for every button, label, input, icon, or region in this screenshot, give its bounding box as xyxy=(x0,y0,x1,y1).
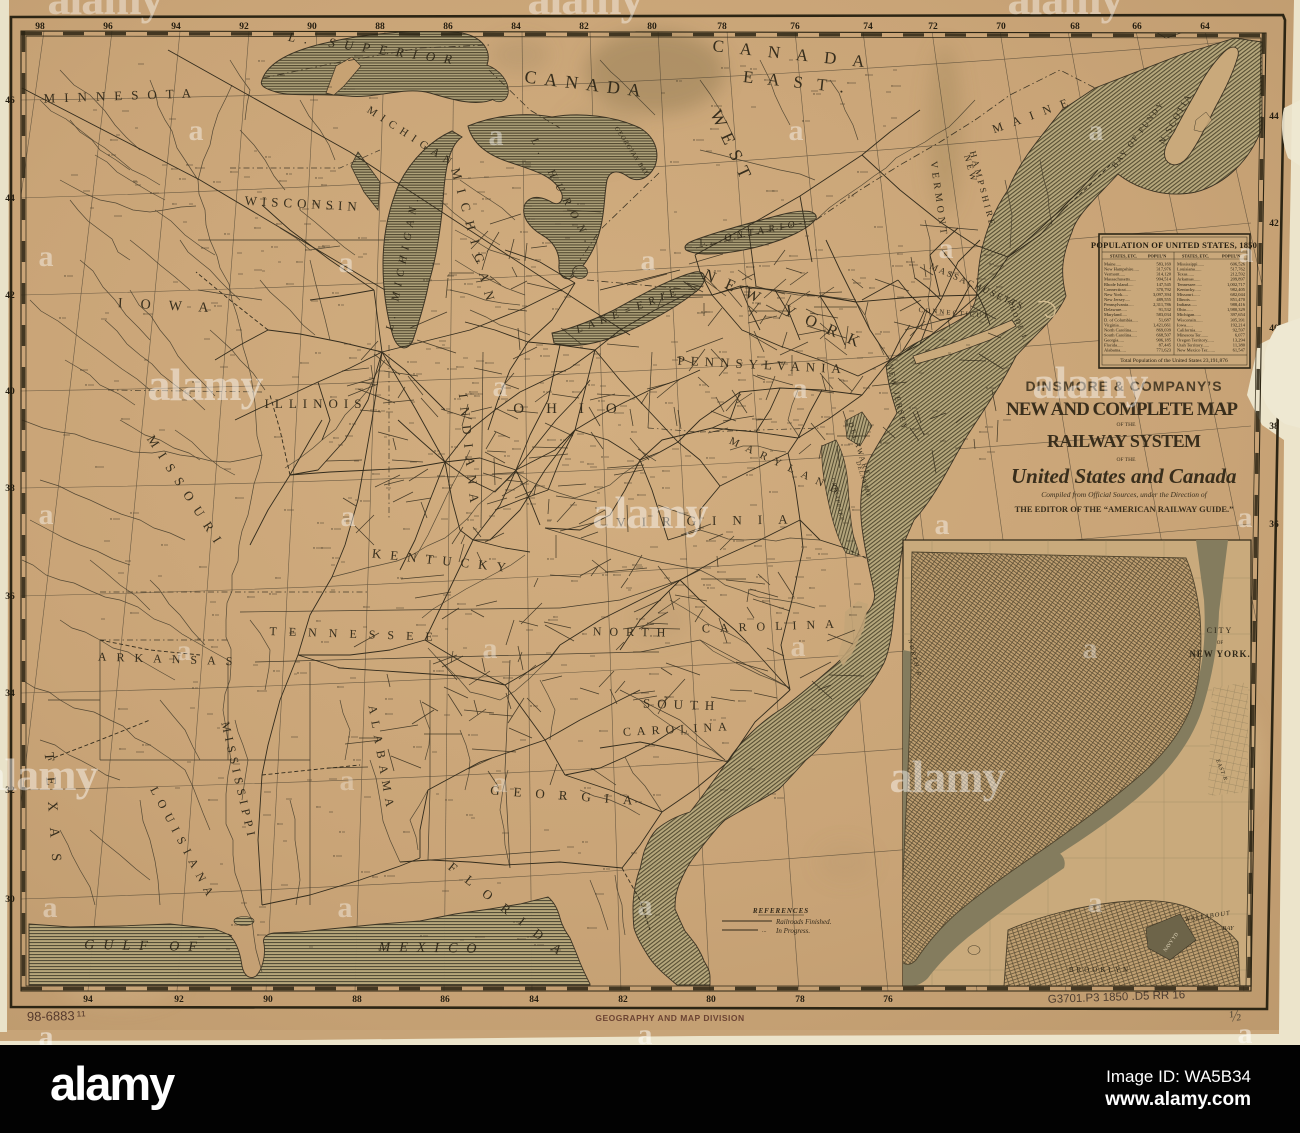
svg-text:72: 72 xyxy=(928,22,938,32)
svg-text:a: a xyxy=(935,508,950,541)
svg-text:a: a xyxy=(793,372,808,405)
svg-text:78: 78 xyxy=(717,22,727,32)
svg-text:44: 44 xyxy=(1269,112,1279,122)
svg-text:a: a xyxy=(177,634,192,667)
svg-text:30: 30 xyxy=(5,895,15,905)
svg-text:98-6883 ¹¹: 98-6883 ¹¹ xyxy=(27,1008,86,1024)
svg-text:66: 66 xyxy=(1132,22,1142,32)
svg-text:a: a xyxy=(189,114,204,147)
svg-text:GEOGRAPHY AND MAP DIVISION: GEOGRAPHY AND MAP DIVISION xyxy=(595,1013,744,1023)
svg-text:78: 78 xyxy=(795,995,805,1005)
svg-text:86: 86 xyxy=(440,995,450,1005)
svg-text:80: 80 xyxy=(647,22,657,32)
svg-text:a: a xyxy=(1238,501,1253,534)
svg-text:a: a xyxy=(641,244,656,277)
svg-text:42: 42 xyxy=(5,291,15,301)
svg-text:BROOKLYN: BROOKLYN xyxy=(1069,966,1131,974)
svg-text:36: 36 xyxy=(1269,520,1279,530)
svg-text:NORTH: NORTH xyxy=(593,624,674,639)
svg-text:88: 88 xyxy=(375,22,385,32)
svg-text:38: 38 xyxy=(5,484,15,494)
svg-text:United States and Canada: United States and Canada xyxy=(1011,464,1237,488)
svg-text:a: a xyxy=(39,498,54,531)
svg-text:In Progress.: In Progress. xyxy=(775,927,810,935)
svg-text:alamy: alamy xyxy=(1032,357,1148,408)
svg-text:a: a xyxy=(43,891,58,924)
svg-text:alamy: alamy xyxy=(889,751,1005,802)
svg-text:Image ID: WA5B34: Image ID: WA5B34 xyxy=(1106,1067,1251,1086)
svg-text:94: 94 xyxy=(171,22,181,32)
svg-text:POPULATION OF UNITED STATES, 1: POPULATION OF UNITED STATES, 1850 xyxy=(1091,240,1257,250)
svg-text:THE EDITOR OF THE “AMERICAN RA: THE EDITOR OF THE “AMERICAN RAILWAY GUID… xyxy=(1015,504,1234,514)
svg-text:74: 74 xyxy=(863,22,873,32)
svg-text:a: a xyxy=(791,630,806,663)
svg-text:SOUTH: SOUTH xyxy=(643,696,722,714)
svg-text:90: 90 xyxy=(263,995,273,1005)
svg-text:a: a xyxy=(638,889,653,922)
svg-text:92: 92 xyxy=(174,995,184,1005)
svg-text:Compiled from Official Sources: Compiled from Official Sources, under th… xyxy=(1041,490,1207,499)
svg-text:NEW YORK.: NEW YORK. xyxy=(1189,649,1251,659)
svg-text:82: 82 xyxy=(618,995,628,1005)
svg-text:76: 76 xyxy=(790,22,800,32)
svg-text:a: a xyxy=(1089,114,1104,147)
svg-text:alamy: alamy xyxy=(147,359,263,410)
svg-text:36: 36 xyxy=(5,592,15,602)
svg-text:86: 86 xyxy=(443,22,453,32)
svg-text:STATES, ETC.: STATES, ETC. xyxy=(1110,254,1137,259)
svg-text:40: 40 xyxy=(5,387,15,397)
svg-text:OF: OF xyxy=(1217,641,1224,646)
svg-text:ILLINOIS: ILLINOIS xyxy=(265,396,368,411)
svg-text:alamy: alamy xyxy=(1007,0,1123,24)
svg-text:98: 98 xyxy=(35,22,45,32)
svg-text:RAILWAY SYSTEM: RAILWAY SYSTEM xyxy=(1047,431,1203,451)
svg-text:92: 92 xyxy=(239,22,249,32)
svg-text:84: 84 xyxy=(529,995,539,1005)
svg-text:64: 64 xyxy=(1200,22,1210,32)
svg-text:90: 90 xyxy=(307,22,317,32)
svg-text:BAY: BAY xyxy=(1222,925,1235,932)
svg-text:POPUL’N: POPUL’N xyxy=(1148,254,1166,259)
svg-text:OF THE: OF THE xyxy=(1117,457,1137,463)
svg-text:a: a xyxy=(1088,886,1103,919)
svg-text:alamy: alamy xyxy=(592,487,708,538)
svg-text:a: a xyxy=(483,632,498,665)
svg-text:alamy: alamy xyxy=(50,1057,175,1110)
svg-text:44: 44 xyxy=(5,194,15,204)
svg-text:OHIO: OHIO xyxy=(513,401,639,417)
svg-text:alamy: alamy xyxy=(527,0,643,24)
svg-text:www.alamy.com: www.alamy.com xyxy=(1104,1089,1251,1110)
svg-text:a: a xyxy=(939,232,954,265)
svg-text:alamy: alamy xyxy=(0,749,99,800)
svg-text:POPUL’N: POPUL’N xyxy=(1222,254,1240,259)
svg-text:Alabama.....: Alabama..... xyxy=(1104,348,1126,353)
svg-text:70: 70 xyxy=(996,22,1006,32)
svg-text:34: 34 xyxy=(5,689,15,699)
svg-text:84: 84 xyxy=(511,22,521,32)
svg-text:a: a xyxy=(338,891,353,924)
svg-text:a: a xyxy=(1239,236,1254,269)
svg-text:80: 80 xyxy=(706,995,716,1005)
svg-text:a: a xyxy=(341,500,356,533)
svg-text:a: a xyxy=(339,246,354,279)
svg-text:a: a xyxy=(489,119,504,152)
svg-text:a: a xyxy=(1083,632,1098,665)
svg-text:a: a xyxy=(39,240,54,273)
svg-text:42: 42 xyxy=(1269,219,1279,229)
svg-text:MEXICO: MEXICO xyxy=(377,940,485,957)
svg-text:GULF OF: GULF OF xyxy=(84,938,206,955)
svg-text:STATES, ETC.: STATES, ETC. xyxy=(1182,254,1209,259)
svg-text:a: a xyxy=(493,370,508,403)
svg-text:76: 76 xyxy=(883,995,893,1005)
svg-text:a: a xyxy=(493,766,508,799)
svg-text:REFERENCES: REFERENCES xyxy=(752,907,809,915)
svg-text:CITY: CITY xyxy=(1207,626,1234,635)
svg-text:a: a xyxy=(789,114,804,147)
svg-text:Railroads Finished.: Railroads Finished. xyxy=(775,918,832,926)
svg-text:94: 94 xyxy=(83,995,93,1005)
svg-text:88: 88 xyxy=(352,995,362,1005)
svg-text:38: 38 xyxy=(1269,422,1279,432)
svg-text:New Mexico Ter.......: New Mexico Ter....... xyxy=(1177,348,1215,353)
svg-text:a: a xyxy=(340,764,355,797)
svg-text:...: ... xyxy=(762,928,767,934)
svg-text:alamy: alamy xyxy=(47,0,163,24)
svg-text:OF THE: OF THE xyxy=(1117,422,1137,428)
svg-text:46: 46 xyxy=(5,96,15,106)
